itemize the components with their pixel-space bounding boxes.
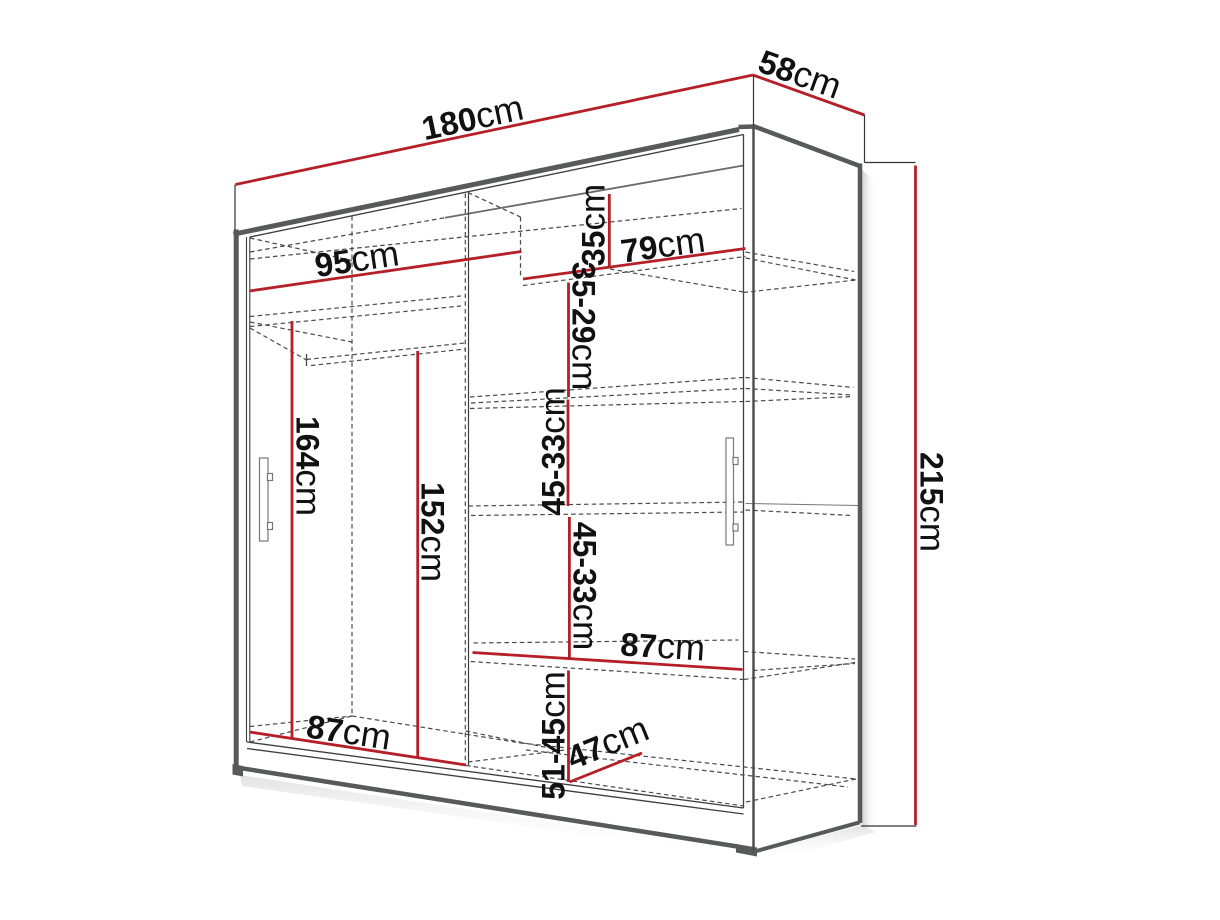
svg-text:35cm: 35cm [574, 184, 613, 266]
svg-text:45-33cm: 45-33cm [534, 387, 573, 516]
svg-text:215cm: 215cm [913, 452, 952, 552]
svg-text:164cm: 164cm [289, 416, 328, 516]
svg-text:51-45cm: 51-45cm [534, 671, 573, 800]
svg-text:45-33cm: 45-33cm [566, 522, 605, 651]
svg-text:87cm: 87cm [619, 622, 706, 668]
svg-text:152cm: 152cm [414, 482, 453, 582]
svg-text:35-29cm: 35-29cm [565, 262, 604, 391]
